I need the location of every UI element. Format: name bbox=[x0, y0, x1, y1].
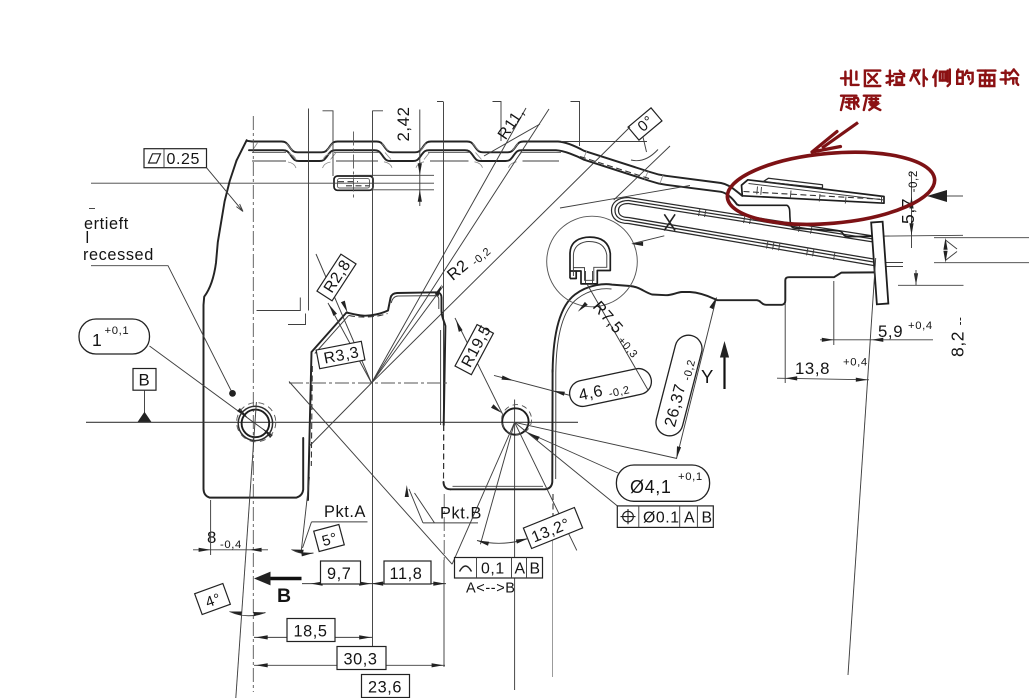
svg-text:30,3: 30,3 bbox=[344, 651, 378, 669]
svg-text:9,7: 9,7 bbox=[327, 565, 351, 583]
svg-text:Pkt.A: Pkt.A bbox=[324, 503, 366, 521]
svg-text:1: 1 bbox=[92, 330, 102, 350]
svg-text:R11,: R11, bbox=[495, 105, 528, 143]
svg-text:A: A bbox=[684, 510, 695, 527]
svg-text:2,42: 2,42 bbox=[394, 106, 413, 141]
svg-text:23,6: 23,6 bbox=[368, 679, 402, 697]
svg-text:18,5: 18,5 bbox=[294, 623, 328, 641]
svg-text:A: A bbox=[515, 561, 526, 578]
svg-text:l: l bbox=[86, 229, 90, 247]
svg-text:0.25: 0.25 bbox=[167, 151, 201, 168]
svg-text:5,7 -0,2: 5,7 -0,2 bbox=[898, 170, 920, 224]
svg-text:+0,1: +0,1 bbox=[678, 471, 703, 483]
svg-text:13,8: 13,8 bbox=[795, 359, 830, 378]
svg-text:-0,4: -0,4 bbox=[220, 539, 242, 551]
svg-text:B: B bbox=[702, 510, 713, 527]
svg-text:R19,5: R19,5 bbox=[459, 322, 495, 370]
svg-text:+0,4: +0,4 bbox=[908, 320, 933, 332]
svg-text:B: B bbox=[277, 585, 292, 607]
svg-text:recessed: recessed bbox=[83, 246, 154, 264]
svg-text:ertieft: ertieft bbox=[84, 215, 129, 233]
svg-text:+0,1: +0,1 bbox=[105, 325, 130, 337]
svg-text:Ø4,1: Ø4,1 bbox=[630, 477, 671, 497]
svg-text:Y: Y bbox=[701, 366, 714, 387]
svg-text:Pkt.B: Pkt.B bbox=[440, 505, 482, 523]
svg-text:B: B bbox=[139, 371, 151, 390]
svg-text:Ø0.1: Ø0.1 bbox=[643, 510, 680, 527]
svg-text:R2 -0,2: R2 -0,2 bbox=[444, 239, 494, 285]
svg-text:+0,4: +0,4 bbox=[843, 357, 868, 369]
svg-text:11,8: 11,8 bbox=[390, 565, 423, 583]
svg-text:B: B bbox=[530, 561, 541, 578]
svg-text:0,1: 0,1 bbox=[481, 561, 505, 578]
svg-text:A<-->B: A<-->B bbox=[466, 581, 516, 597]
svg-text:8,2 --: 8,2 -- bbox=[948, 317, 968, 357]
svg-text:8: 8 bbox=[207, 528, 217, 547]
svg-text:R7,5 +0,3: R7,5 +0,3 bbox=[587, 298, 645, 361]
